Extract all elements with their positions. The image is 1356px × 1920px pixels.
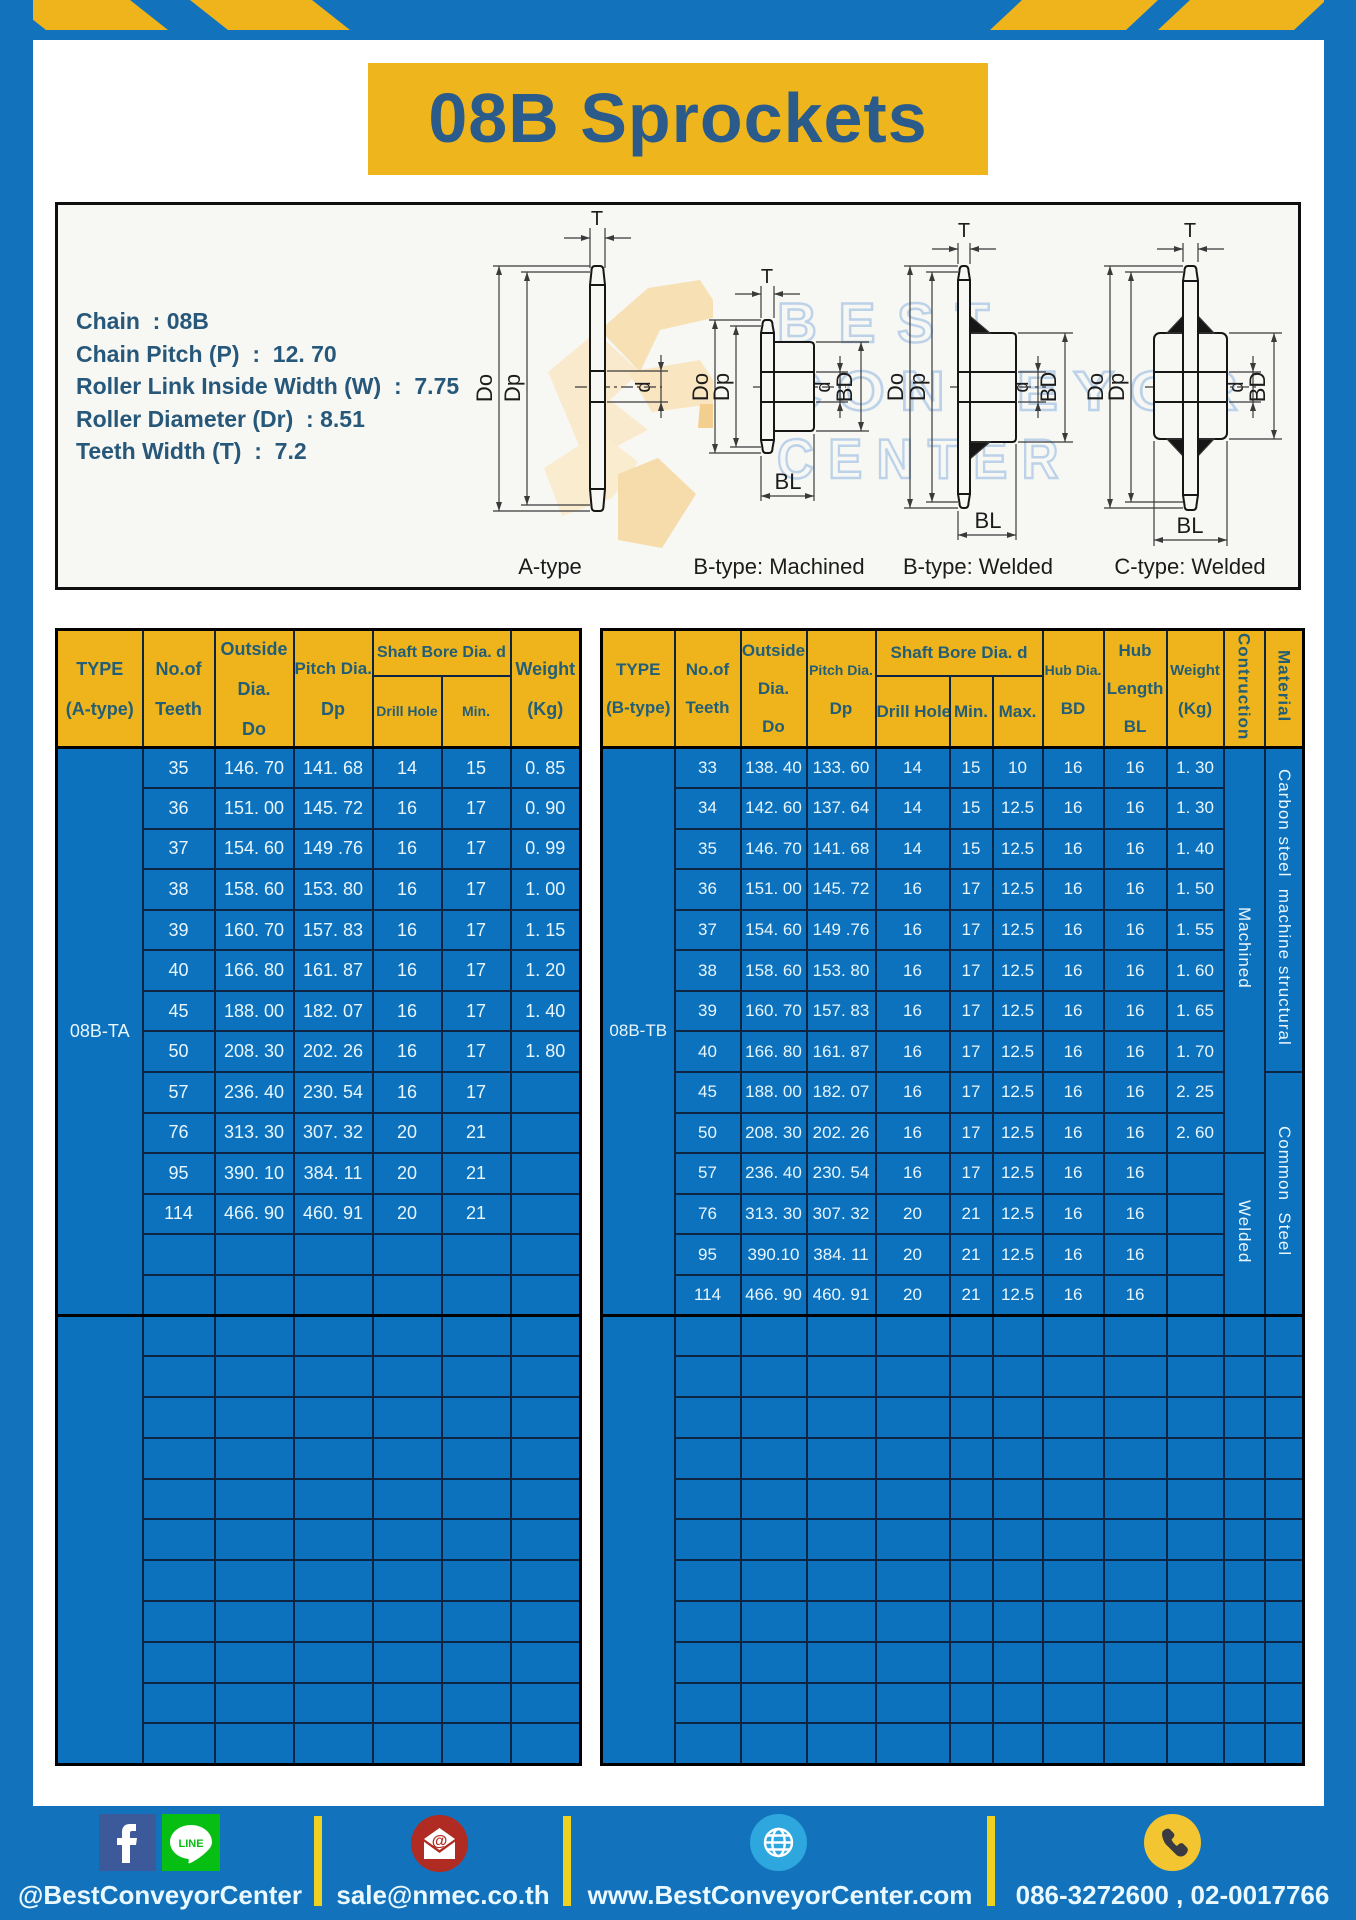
svg-text:B-type: Welded: B-type: Welded xyxy=(903,554,1053,579)
svg-text:T: T xyxy=(958,220,970,242)
svg-text:Dp: Dp xyxy=(500,374,525,402)
svg-text:@: @ xyxy=(432,1833,448,1850)
svg-text:T: T xyxy=(761,266,773,288)
svg-text:Dp: Dp xyxy=(1104,373,1129,401)
svg-text:A-type: A-type xyxy=(518,554,582,579)
svg-text:C-type: Welded: C-type: Welded xyxy=(1114,554,1265,579)
svg-text:BL: BL xyxy=(975,508,1002,533)
svg-text:B-type: Machined: B-type: Machined xyxy=(693,554,864,579)
svg-text:T: T xyxy=(591,208,603,230)
svg-text:T: T xyxy=(1184,220,1196,242)
svg-text:Dp: Dp xyxy=(709,373,734,401)
svg-text:BD: BD xyxy=(1036,372,1061,403)
svg-text:CENTER: CENTER xyxy=(777,427,1073,490)
svg-text:BL: BL xyxy=(1177,513,1204,538)
svg-text:LINE: LINE xyxy=(178,1838,203,1850)
svg-text:Dp: Dp xyxy=(905,373,930,401)
svg-text:BL: BL xyxy=(775,469,802,494)
svg-text:Do: Do xyxy=(472,374,497,402)
svg-text:BD: BD xyxy=(832,372,857,403)
